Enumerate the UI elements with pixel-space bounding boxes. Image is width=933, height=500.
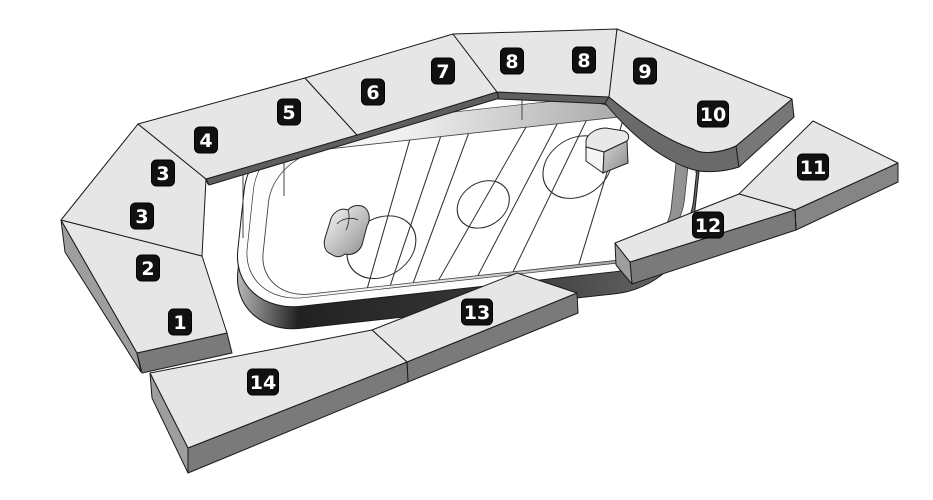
- section-badge-12[interactable]: 12: [693, 212, 724, 238]
- section-badge-label: 9: [638, 61, 651, 83]
- section-badge-3[interactable]: 3: [152, 160, 175, 186]
- section-badge-13[interactable]: 13: [462, 299, 493, 325]
- section-badge-label: 11: [800, 157, 826, 179]
- section-badge-8[interactable]: 8: [573, 47, 596, 73]
- section-badge-5[interactable]: 5: [278, 99, 301, 125]
- section-badge-6[interactable]: 6: [362, 79, 385, 105]
- section-badge-label: 8: [505, 51, 518, 73]
- section-badge-3[interactable]: 3: [131, 203, 154, 229]
- section-badge-label: 3: [135, 206, 148, 228]
- section-badge-label: 2: [141, 258, 154, 280]
- section-badge-10[interactable]: 10: [698, 101, 729, 127]
- section-badge-label: 3: [156, 163, 169, 185]
- section-badge-4[interactable]: 4: [195, 127, 218, 153]
- section-badge-label: 6: [366, 82, 379, 104]
- section-badge-label: 1: [173, 312, 186, 334]
- section-badge-label: 13: [464, 302, 490, 324]
- section-badge-label: 14: [250, 372, 276, 394]
- section-badge-14[interactable]: 14: [248, 369, 279, 395]
- seating-map-canvas: 123345678891011121314: [0, 0, 933, 500]
- section-badge-label: 12: [695, 215, 721, 237]
- section-badge-label: 10: [700, 104, 726, 126]
- section-badge-1[interactable]: 1: [169, 309, 192, 335]
- section-badge-7[interactable]: 7: [432, 58, 455, 84]
- section-badge-label: 7: [436, 61, 449, 83]
- arena-seating-map: 123345678891011121314: [0, 0, 933, 500]
- section-badge-9[interactable]: 9: [634, 58, 657, 84]
- section-badge-8[interactable]: 8: [501, 48, 524, 74]
- section-badge-label: 5: [282, 102, 295, 124]
- section-badge-2[interactable]: 2: [137, 255, 160, 281]
- section-badge-label: 8: [577, 50, 590, 72]
- section-badge-label: 4: [199, 130, 212, 152]
- section-badge-11[interactable]: 11: [798, 154, 829, 180]
